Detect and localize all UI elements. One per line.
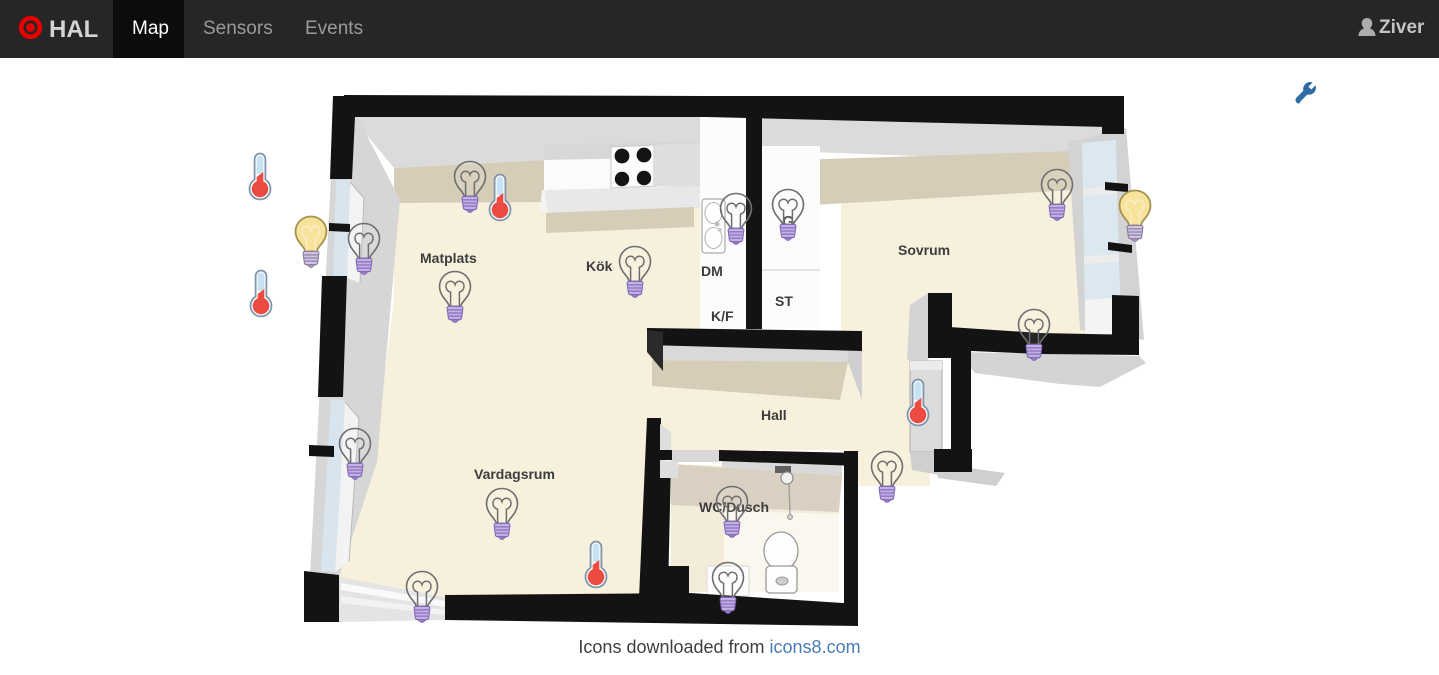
svg-text:ST: ST <box>775 293 793 309</box>
svg-text:Matplats: Matplats <box>420 250 477 266</box>
svg-text:Vardagsrum: Vardagsrum <box>474 466 555 482</box>
svg-text:Sovrum: Sovrum <box>898 242 950 258</box>
svg-text:DM: DM <box>701 263 723 279</box>
svg-text:Hall: Hall <box>761 407 787 423</box>
svg-text:Kök: Kök <box>586 258 613 274</box>
svg-text:K/F: K/F <box>711 308 734 324</box>
